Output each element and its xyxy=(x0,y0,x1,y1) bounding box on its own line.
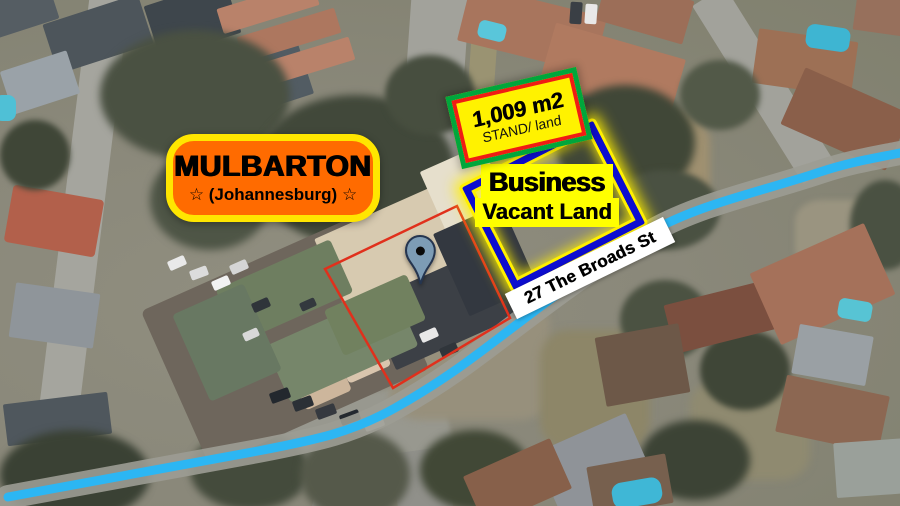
property-label: Business Vacant Land xyxy=(447,164,647,227)
suburb-name: MULBARTON xyxy=(174,151,371,183)
map-annotation-layer xyxy=(0,0,900,506)
property-label-line2: Vacant Land xyxy=(475,198,619,227)
property-label-line1: Business xyxy=(481,164,613,199)
suburb-badge: MULBARTON ☆ (Johannesburg) ☆ xyxy=(166,134,380,222)
suburb-city: ☆ (Johannesburg) ☆ xyxy=(189,185,357,205)
aerial-map-image: Business Vacant Land 1,009 m2 STAND/ lan… xyxy=(0,0,900,506)
map-pin-icon xyxy=(406,236,435,284)
